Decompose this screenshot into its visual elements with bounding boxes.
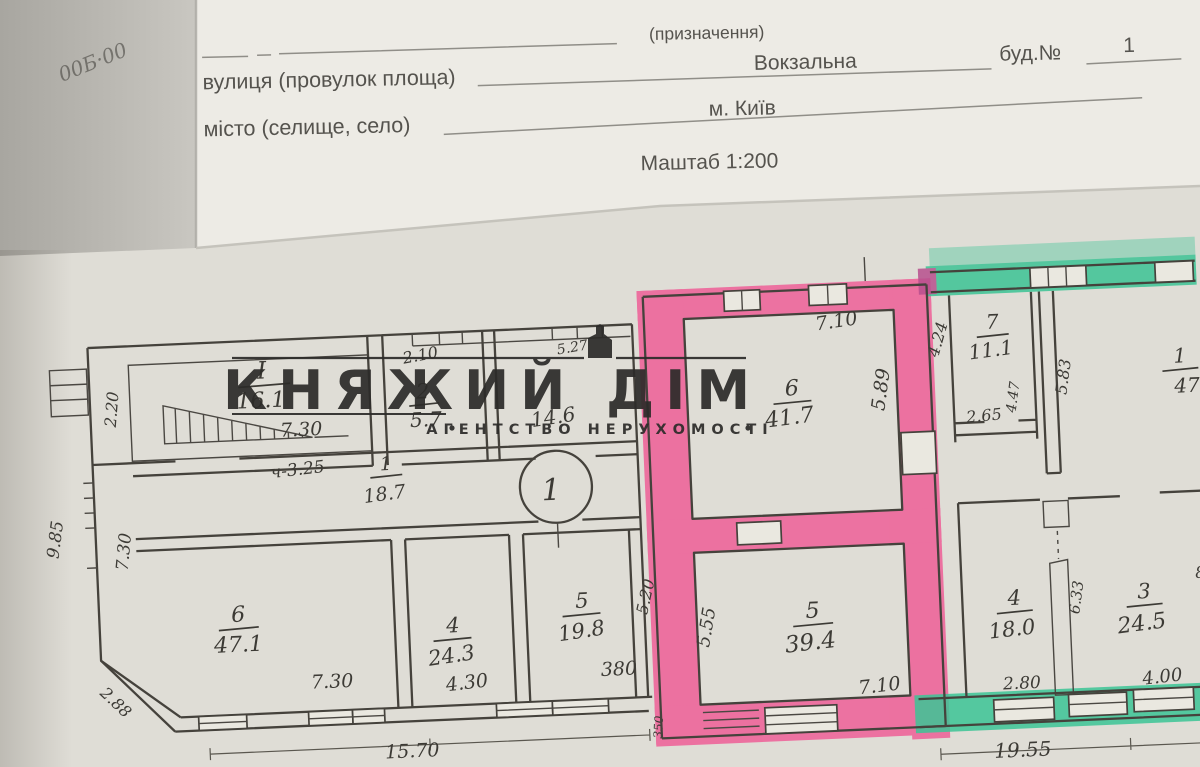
building-label: буд.№ (999, 41, 1061, 65)
dim-room-7-width: 2.65 (964, 404, 1002, 426)
pink-room-6-number: 6 (784, 376, 799, 402)
building-number: 1 (1123, 34, 1135, 57)
room-4r-number: 4 (1006, 586, 1021, 611)
scanned-floorplan-photo: 00Б·00 (призначення) вулиця (провулок пл… (0, 0, 1200, 767)
dim-room-6l-width: 7.30 (311, 670, 354, 694)
city-label: місто (селище, село) (203, 113, 410, 141)
room-6l-number: 6 (231, 602, 246, 628)
scale-label: Маштаб 1:200 (640, 149, 778, 175)
entry-circle-number: 1 (541, 473, 562, 509)
room-1r-area: 47 (1173, 373, 1200, 398)
dim-room-I-depth: 2.20 (101, 391, 123, 429)
dim-right-total-width: 19.55 (994, 736, 1052, 762)
dim-pink-wall-note: 350 (651, 715, 666, 739)
watermark-subtitle: АГЕНТСТВО НЕРУХОМОСТІ (426, 422, 773, 438)
street-value: Вокзальна (754, 50, 858, 75)
floorplan-svg: 00Б·00 (призначення) вулиця (провулок пл… (0, 0, 1200, 767)
room-6l-area: 47.1 (213, 632, 264, 659)
dim-left-total-width: 15.70 (385, 739, 440, 763)
room-4l-number: 4 (445, 613, 460, 638)
designation-label: (призначення) (649, 22, 765, 44)
room-1r-number: 1 (1173, 343, 1187, 368)
room-5l-number: 5 (575, 588, 589, 613)
pink-room-5-number: 5 (805, 598, 820, 624)
corridor-number: 1 (379, 453, 392, 476)
room-3r-number: 3 (1137, 579, 1151, 604)
watermark-title: КНЯЖИЙ ДІМ (223, 359, 761, 422)
city-value: м. Київ (709, 96, 777, 120)
dim-room-4r-width: 2.80 (1002, 673, 1042, 695)
dim-edge-partial: 8 (1195, 563, 1200, 582)
dim-left-height-b: 7.30 (113, 532, 137, 572)
room-7-number: 7 (985, 309, 999, 334)
dim-room-5l-width: 380 (600, 657, 637, 681)
underlying-sheet (0, 0, 196, 256)
